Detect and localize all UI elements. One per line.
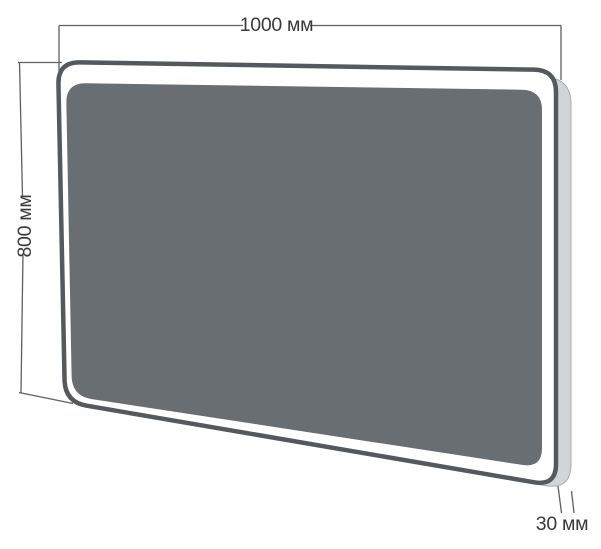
- width-label: 1000 мм: [240, 14, 314, 36]
- diagram-canvas: 1000 мм 800 мм 30 мм: [0, 0, 601, 549]
- height-dim-line-upper: [20, 63, 23, 198]
- depth-ext-line-left: [558, 486, 562, 513]
- depth-dimension: [558, 486, 574, 513]
- height-ext-line-bottom: [19, 393, 73, 404]
- height-label: 800 мм: [14, 195, 36, 258]
- depth-label: 30 мм: [536, 513, 588, 535]
- depth-ext-line-right: [572, 491, 575, 513]
- mirror-dimension-diagram: 1000 мм 800 мм 30 мм: [0, 0, 601, 549]
- height-dim-line-lower: [21, 253, 23, 393]
